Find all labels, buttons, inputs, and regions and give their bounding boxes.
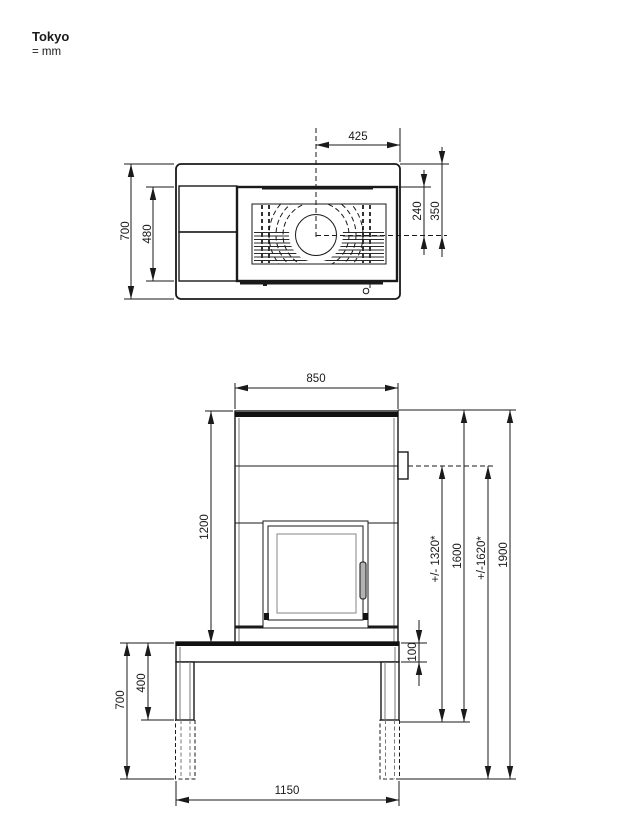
- dim-total-height-standard: 1600: [452, 410, 467, 722]
- front-view: 850 1200 +/- 1320* 1600 +/-1620*: [115, 373, 516, 806]
- dim-label-240: 240: [412, 201, 424, 220]
- door-hinge-plan: [263, 281, 267, 286]
- drawing-canvas: Tokyo = mm: [0, 0, 619, 839]
- top-plate: [235, 412, 398, 417]
- dim-leg-height-standard: 400: [136, 643, 174, 720]
- dim-label-850: 850: [306, 373, 325, 385]
- fire-door: [263, 521, 368, 628]
- side-flue-outlet: [398, 452, 408, 479]
- dim-body-depth: 480: [142, 187, 174, 281]
- legs: [176, 662, 400, 779]
- bench: [176, 642, 399, 662]
- dim-label-1150: 1150: [275, 785, 300, 797]
- drawing-title: Tokyo: [32, 29, 69, 44]
- leg-left: [176, 662, 194, 720]
- dim-bench-thickness: 100: [401, 620, 427, 686]
- reference-lines: [398, 410, 516, 779]
- dim-label-350: 350: [430, 201, 442, 220]
- top-view-stove-body: [176, 164, 400, 299]
- dim-flue-height-standard: +/- 1320*: [430, 466, 445, 722]
- dim-flue-offset: 425: [316, 128, 400, 162]
- dim-flue-from-back: 240: [399, 170, 431, 255]
- dim-body-width: 850: [235, 373, 398, 409]
- door-hinge-left: [264, 613, 269, 620]
- dim-leg-height-extended: 700: [115, 643, 174, 779]
- dim-label-1620: +/-1620*: [476, 536, 488, 580]
- dim-body-height: 1200: [199, 411, 233, 643]
- dim-label-1600: 1600: [452, 543, 464, 569]
- dim-label-1200: 1200: [199, 514, 211, 540]
- bench-top-edge: [176, 642, 399, 646]
- door-glass: [277, 534, 356, 613]
- dim-label-700-top: 700: [120, 221, 132, 240]
- dim-label-400: 400: [136, 673, 148, 692]
- adjustable-leg-left: [176, 720, 196, 779]
- dim-label-100: 100: [407, 642, 419, 661]
- dim-label-1320: +/- 1320*: [430, 535, 442, 583]
- top-view: 425 700 480 240: [120, 128, 449, 299]
- dim-label-480: 480: [142, 224, 154, 243]
- leg-right: [381, 662, 399, 720]
- door-hinge-right: [363, 613, 368, 620]
- dim-flue-height-extended: +/-1620*: [476, 466, 491, 779]
- dim-base-width: 1150: [176, 781, 399, 806]
- dim-label-1900: 1900: [498, 542, 510, 568]
- adjustable-leg-right: [380, 720, 400, 779]
- stove-dimension-drawing: Tokyo = mm: [0, 0, 619, 839]
- dim-label-425: 425: [348, 131, 367, 143]
- door-handle: [360, 562, 366, 599]
- dim-total-height-extended: 1900: [498, 410, 513, 779]
- units-label: = mm: [32, 46, 61, 58]
- dim-label-700-front: 700: [115, 690, 127, 709]
